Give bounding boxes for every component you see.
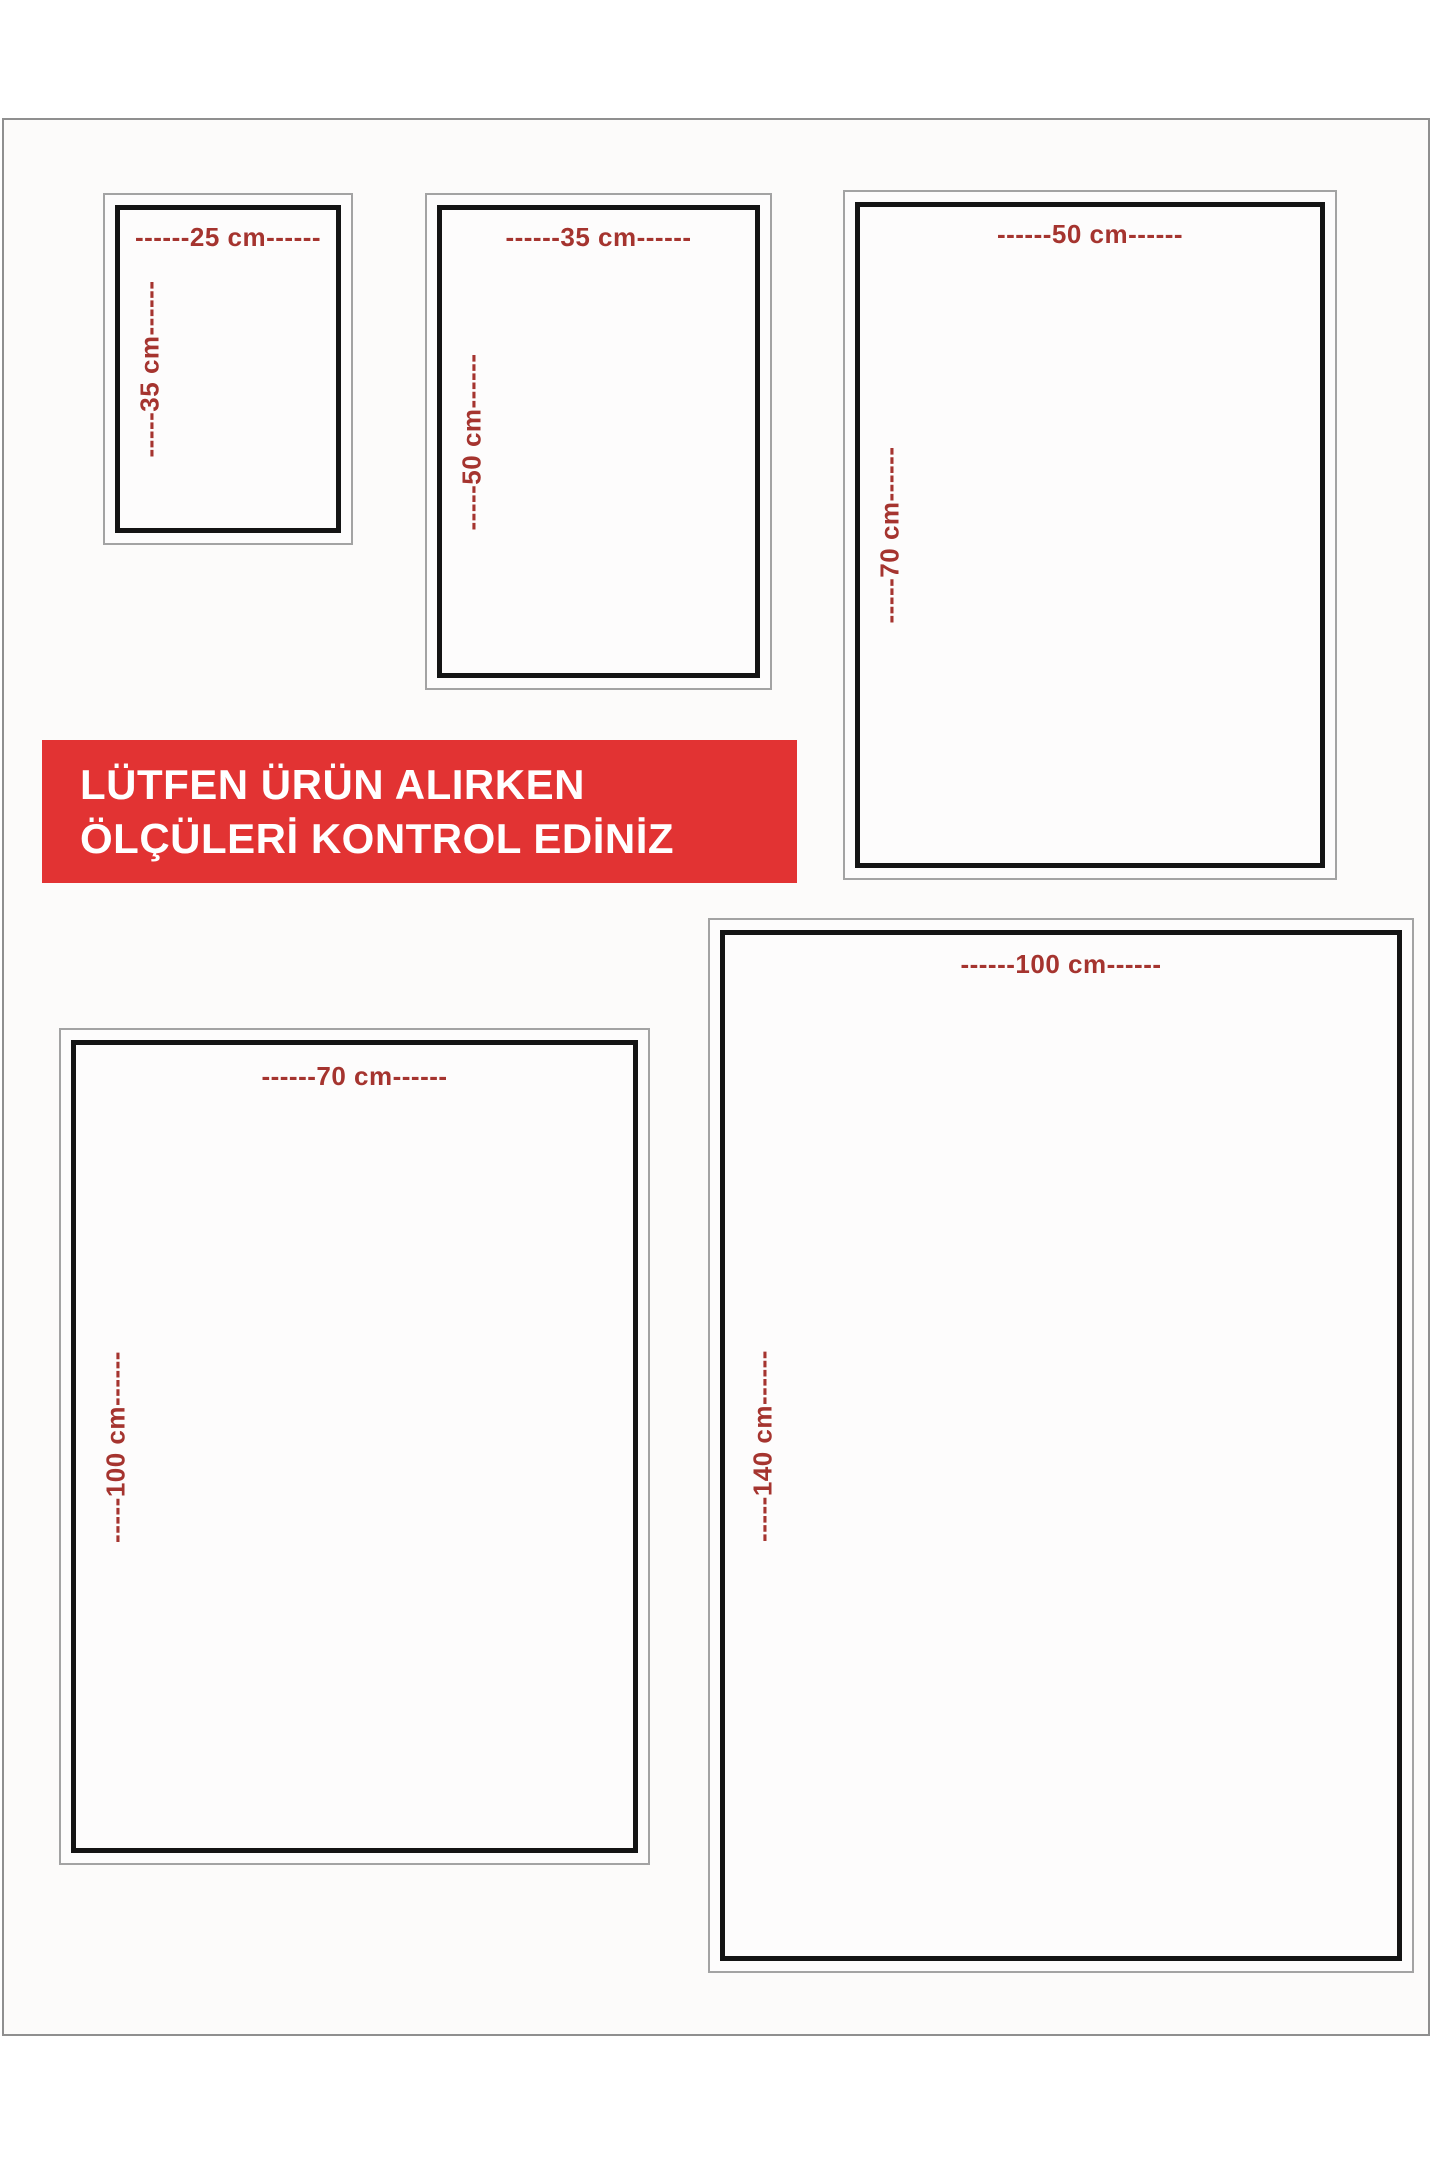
size-box-35x50: ------35 cm------ -----50 cm------	[425, 193, 772, 690]
height-dimension-label-50cm: -----50 cm------	[457, 353, 488, 530]
width-dimension-label-50cm: ------50 cm------	[860, 219, 1320, 250]
height-dimension-label-70cm: -----70 cm------	[875, 447, 906, 624]
size-box-70x100-inner: ------70 cm------ -----100 cm------	[71, 1040, 638, 1853]
size-box-50x70: ------50 cm------ -----70 cm------	[843, 190, 1337, 880]
size-box-100x140-inner: ------100 cm------ -----140 cm------	[720, 930, 1402, 1961]
size-box-25x35: ------25 cm------ -----35 cm------	[103, 193, 353, 545]
size-box-100x140: ------100 cm------ -----140 cm------	[708, 918, 1414, 1973]
warning-banner-line2: ÖLÇÜLERİ KONTROL EDİNİZ	[80, 812, 797, 866]
size-box-35x50-inner: ------35 cm------ -----50 cm------	[437, 205, 760, 678]
warning-banner: LÜTFEN ÜRÜN ALIRKEN ÖLÇÜLERİ KONTROL EDİ…	[42, 740, 797, 883]
size-box-70x100: ------70 cm------ -----100 cm------	[59, 1028, 650, 1865]
size-box-50x70-inner: ------50 cm------ -----70 cm------	[855, 202, 1325, 868]
width-dimension-label-70cm: ------70 cm------	[76, 1061, 633, 1092]
width-dimension-label-100cm: ------100 cm------	[725, 949, 1397, 980]
warning-banner-line1: LÜTFEN ÜRÜN ALIRKEN	[80, 758, 797, 812]
width-dimension-label-25cm: ------25 cm------	[120, 222, 336, 253]
height-dimension-label-140cm: -----140 cm------	[748, 1350, 779, 1542]
size-box-25x35-inner: ------25 cm------ -----35 cm------	[115, 205, 341, 533]
width-dimension-label-35cm: ------35 cm------	[442, 222, 755, 253]
height-dimension-label-35cm: -----35 cm------	[135, 281, 166, 458]
height-dimension-label-100cm: -----100 cm------	[101, 1351, 132, 1543]
